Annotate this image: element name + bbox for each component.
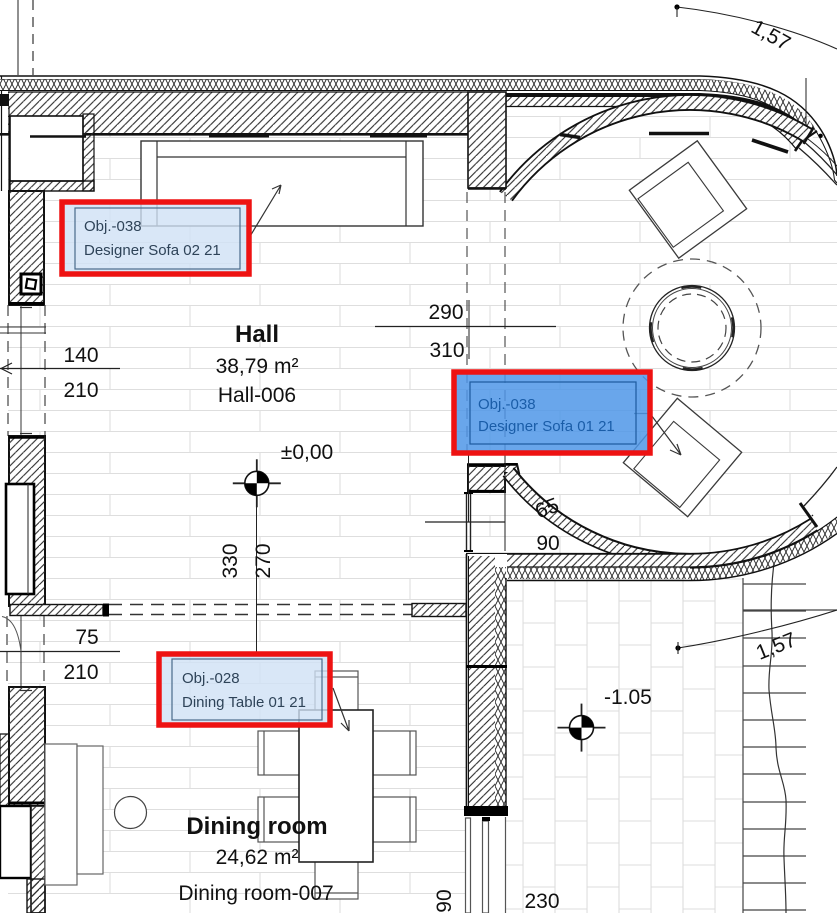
svg-text:Dining room: Dining room xyxy=(186,813,327,840)
svg-text:75: 75 xyxy=(75,626,98,649)
svg-text:Designer Sofa 01 21: Designer Sofa 01 21 xyxy=(478,418,615,435)
svg-text:Hall: Hall xyxy=(235,321,279,348)
svg-text:Obj.-028: Obj.-028 xyxy=(182,670,240,687)
svg-text:210: 210 xyxy=(63,661,98,684)
svg-text:310: 310 xyxy=(429,339,464,362)
svg-text:-1.05: -1.05 xyxy=(604,686,652,709)
svg-text:90: 90 xyxy=(433,889,456,912)
svg-text:Designer Sofa 02 21: Designer Sofa 02 21 xyxy=(84,242,221,259)
svg-text:90: 90 xyxy=(536,532,559,555)
svg-text:Obj.-038: Obj.-038 xyxy=(84,218,142,235)
svg-text:230: 230 xyxy=(524,890,559,913)
svg-text:Dining room-007: Dining room-007 xyxy=(178,882,333,905)
svg-text:140: 140 xyxy=(63,344,98,367)
svg-text:38,79 m²: 38,79 m² xyxy=(216,355,299,378)
svg-text:24,62 m²: 24,62 m² xyxy=(216,846,299,869)
svg-text:Dining Table 01 21: Dining Table 01 21 xyxy=(182,694,306,711)
svg-text:270: 270 xyxy=(252,543,275,578)
svg-text:290: 290 xyxy=(428,301,463,324)
svg-text:330: 330 xyxy=(219,543,242,578)
svg-text:Obj.-038: Obj.-038 xyxy=(478,396,536,413)
svg-text:210: 210 xyxy=(63,379,98,402)
svg-text:±0,00: ±0,00 xyxy=(281,441,333,464)
svg-text:Hall-006: Hall-006 xyxy=(218,384,296,407)
